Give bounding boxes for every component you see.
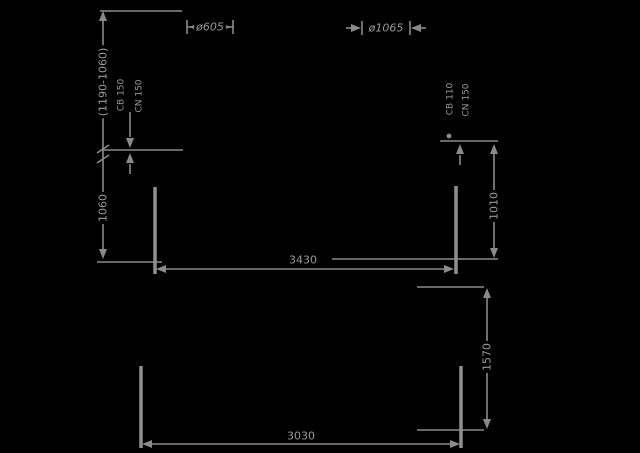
dimension-arrowheads: [99, 11, 498, 448]
dim-lower-height-label: 1570: [482, 341, 493, 373]
dim-left-height-label: 1060: [98, 192, 109, 224]
technical-drawing: (1190-1060) 1060 1010 1570 3430 3030 ø60…: [0, 0, 640, 453]
hook-label-left-2: CN 150: [136, 77, 145, 114]
dim-small-diameter-label: ø605: [194, 22, 226, 33]
dim-upper-span-label: 3430: [287, 255, 319, 266]
dim-range-label: (1190-1060): [98, 46, 109, 119]
dim-right-height-label: 1010: [489, 190, 500, 222]
dim-large-diameter-label: ø1065: [367, 23, 406, 34]
hook-label-left-1: CB 150: [118, 77, 127, 114]
hook-label-right-1: CB 110: [447, 81, 456, 118]
dimension-lines: [97, 11, 498, 444]
object-outline-lines: [141, 186, 461, 448]
dim-lower-span-label: 3030: [285, 431, 317, 442]
hook-label-right-2: CN 150: [463, 81, 472, 118]
